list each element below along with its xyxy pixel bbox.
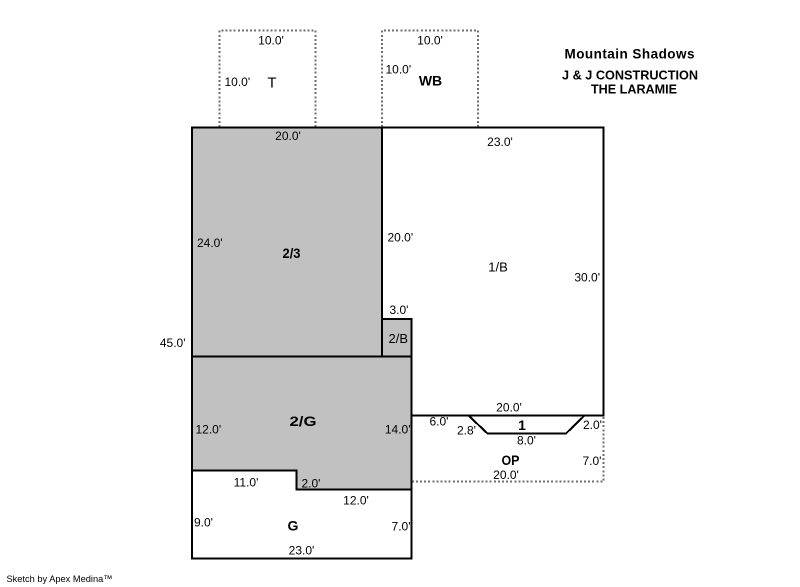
svg-text:10.0': 10.0' xyxy=(417,34,443,48)
svg-text:10.0': 10.0' xyxy=(258,34,284,48)
svg-text:23.0': 23.0' xyxy=(487,135,513,149)
svg-text:23.0': 23.0' xyxy=(289,544,315,558)
svg-text:10.0': 10.0' xyxy=(225,75,251,89)
svg-text:20.0': 20.0' xyxy=(493,468,519,482)
svg-text:7.0': 7.0' xyxy=(392,520,411,534)
svg-text:2/G: 2/G xyxy=(290,413,317,429)
svg-text:OP: OP xyxy=(502,452,520,468)
svg-text:2.0': 2.0' xyxy=(583,418,602,432)
svg-text:10.0': 10.0' xyxy=(386,63,412,77)
svg-text:45.0': 45.0' xyxy=(160,336,186,350)
svg-text:2.0': 2.0' xyxy=(302,477,321,491)
svg-text:30.0': 30.0' xyxy=(574,271,600,285)
svg-text:1: 1 xyxy=(518,417,526,433)
svg-text:20.0': 20.0' xyxy=(275,129,301,143)
svg-text:8.0': 8.0' xyxy=(517,434,536,448)
svg-text:7.0': 7.0' xyxy=(583,454,602,468)
svg-text:J & J CONSTRUCTION: J & J CONSTRUCTION xyxy=(562,69,698,83)
svg-text:20.0': 20.0' xyxy=(388,231,414,245)
svg-text:3.0': 3.0' xyxy=(390,303,409,317)
svg-text:20.0': 20.0' xyxy=(496,401,522,415)
svg-text:12.0': 12.0' xyxy=(343,494,369,508)
svg-text:Mountain Shadows: Mountain Shadows xyxy=(565,47,695,62)
svg-text:14.0': 14.0' xyxy=(385,423,411,437)
svg-text:11.0': 11.0' xyxy=(234,476,259,490)
svg-text:Sketch by Apex Medina™: Sketch by Apex Medina™ xyxy=(7,574,113,585)
svg-text:1/B: 1/B xyxy=(488,260,508,275)
svg-text:T: T xyxy=(267,75,276,92)
svg-text:THE LARAMIE: THE LARAMIE xyxy=(591,82,677,96)
svg-text:2/B: 2/B xyxy=(389,331,409,346)
svg-text:6.0': 6.0' xyxy=(430,415,449,429)
svg-text:WB: WB xyxy=(419,73,442,89)
svg-text:2.8': 2.8' xyxy=(457,424,476,438)
svg-text:9.0': 9.0' xyxy=(194,516,213,530)
svg-text:2/3: 2/3 xyxy=(283,245,301,261)
svg-text:12.0': 12.0' xyxy=(196,423,222,437)
svg-text:G: G xyxy=(288,518,299,534)
svg-text:24.0': 24.0' xyxy=(197,236,223,250)
